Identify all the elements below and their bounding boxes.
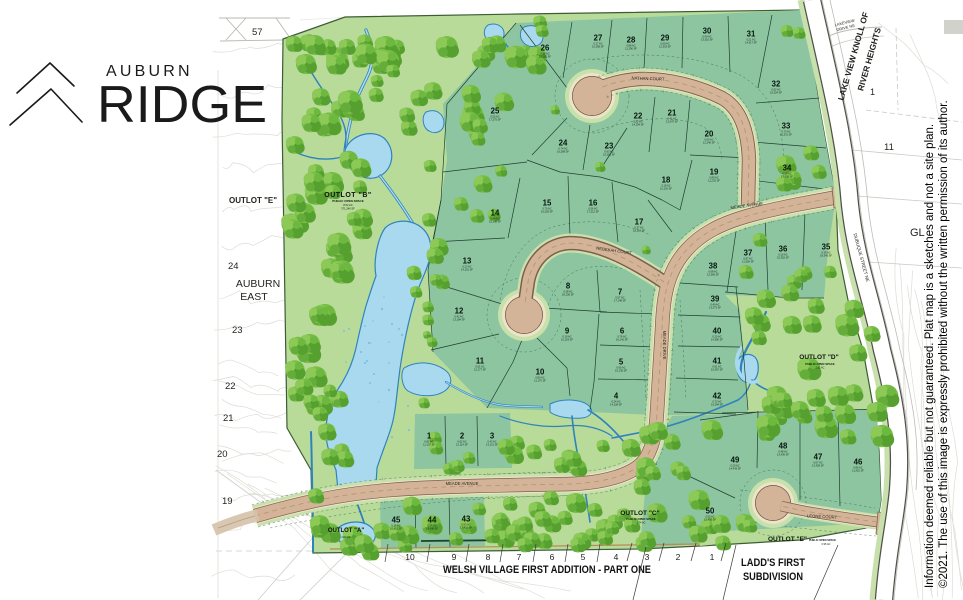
- svg-text:21: 21: [223, 413, 234, 424]
- svg-text:1.74 AC: 1.74 AC: [637, 522, 646, 525]
- svg-text:15: 15: [543, 199, 552, 208]
- svg-text:25: 25: [491, 107, 500, 116]
- svg-text:48: 48: [779, 442, 788, 451]
- svg-text:10,415 SF: 10,415 SF: [390, 527, 402, 531]
- svg-text:16,331 SF: 16,331 SF: [780, 133, 792, 137]
- svg-text:2.31 AC: 2.31 AC: [816, 367, 825, 370]
- svg-text:18,408 SF: 18,408 SF: [426, 527, 438, 531]
- svg-text:30: 30: [703, 27, 712, 36]
- svg-text:LADD'S FIRST: LADD'S FIRST: [741, 557, 805, 569]
- svg-text:15,387 SF: 15,387 SF: [711, 368, 723, 372]
- svg-text:45: 45: [392, 516, 401, 525]
- svg-text:11,107 SF: 11,107 SF: [423, 443, 435, 447]
- svg-text:OUTLOT "E": OUTLOT "E": [229, 196, 277, 205]
- svg-text:7: 7: [517, 552, 522, 562]
- svg-text:8: 8: [566, 282, 571, 291]
- svg-text:12,240 SF: 12,240 SF: [703, 141, 715, 145]
- svg-text:13,310 SF: 13,310 SF: [701, 38, 713, 42]
- svg-text:12,177 SF: 12,177 SF: [474, 368, 486, 372]
- svg-text:1: 1: [870, 87, 875, 97]
- svg-text:2.04 AC: 2.04 AC: [341, 535, 350, 539]
- svg-text:50: 50: [706, 507, 715, 516]
- svg-text:33: 33: [782, 122, 791, 131]
- svg-text:6: 6: [550, 552, 555, 562]
- svg-text:35: 35: [822, 243, 831, 252]
- svg-text:16,205 SF: 16,205 SF: [541, 210, 553, 214]
- svg-text:1: 1: [427, 432, 432, 441]
- svg-text:7: 7: [618, 288, 622, 297]
- svg-text:12,366 SF: 12,366 SF: [707, 273, 719, 277]
- svg-text:RIDGE: RIDGE: [97, 76, 267, 134]
- svg-text:23: 23: [232, 325, 243, 336]
- svg-text:OUTLOT "B": OUTLOT "B": [324, 192, 371, 199]
- svg-text:28: 28: [627, 36, 636, 45]
- svg-text:21: 21: [668, 109, 677, 118]
- svg-text:24: 24: [559, 139, 568, 148]
- svg-text:MEADE AVENUE: MEADE AVENUE: [446, 481, 479, 486]
- svg-text:17,338 SF: 17,338 SF: [781, 175, 793, 179]
- svg-text:14,254 SF: 14,254 SF: [632, 123, 644, 127]
- svg-text:3: 3: [490, 432, 495, 441]
- svg-text:14,128 SF: 14,128 SF: [610, 403, 622, 407]
- svg-text:EAST: EAST: [240, 291, 268, 303]
- svg-text:18,282 SF: 18,282 SF: [539, 55, 551, 59]
- svg-text:11: 11: [884, 142, 894, 153]
- svg-text:32: 32: [772, 80, 781, 89]
- svg-text:©2021. The use of this image: ©2021. The use of this image is expressl…: [938, 100, 950, 588]
- svg-text:42: 42: [713, 392, 722, 401]
- svg-text:17: 17: [635, 218, 644, 227]
- svg-text:20: 20: [705, 130, 714, 139]
- svg-text:11,170 SF: 11,170 SF: [534, 379, 546, 383]
- svg-text:4: 4: [614, 392, 619, 401]
- svg-text:22: 22: [634, 112, 643, 121]
- svg-text:11,233 SF: 11,233 SF: [708, 179, 720, 183]
- svg-text:22: 22: [225, 381, 236, 392]
- svg-text:2: 2: [676, 552, 681, 562]
- svg-text:14,380 SF: 14,380 SF: [711, 338, 723, 342]
- svg-text:20: 20: [217, 449, 228, 460]
- svg-text:AUBURN: AUBURN: [236, 278, 280, 290]
- svg-text:29: 29: [661, 34, 670, 43]
- svg-text:13,121 SF: 13,121 SF: [486, 443, 498, 447]
- svg-text:11,359 SF: 11,359 SF: [742, 260, 754, 264]
- svg-text:43: 43: [462, 515, 471, 524]
- svg-text:15,135 SF: 15,135 SF: [615, 369, 627, 373]
- svg-text:57: 57: [252, 27, 263, 38]
- svg-text:SUBDIVISION: SUBDIVISION: [743, 571, 803, 583]
- svg-text:371,246 SF: 371,246 SF: [341, 207, 355, 211]
- svg-text:15,198 SF: 15,198 SF: [489, 220, 501, 224]
- svg-text:15,450 SF: 15,450 SF: [704, 518, 716, 522]
- svg-text:10,163 SF: 10,163 SF: [561, 338, 573, 342]
- svg-text:40: 40: [713, 327, 722, 336]
- svg-text:19: 19: [710, 168, 719, 177]
- svg-text:11,422 SF: 11,422 SF: [852, 469, 864, 473]
- svg-text:16: 16: [589, 199, 598, 208]
- svg-text:19: 19: [222, 496, 233, 507]
- svg-text:Information deemed reliable bu: Information deemed reliable but not guar…: [924, 124, 936, 588]
- svg-text:12,303 SF: 12,303 SF: [659, 45, 671, 49]
- svg-text:36: 36: [779, 245, 788, 254]
- svg-text:38: 38: [709, 262, 718, 271]
- svg-text:10,289 SF: 10,289 SF: [592, 45, 604, 49]
- svg-text:GL: GL: [910, 227, 925, 239]
- svg-text:OUTLOT "A": OUTLOT "A": [328, 528, 365, 534]
- svg-text:31: 31: [747, 30, 756, 39]
- svg-text:PUBLIC OPEN SPACE: PUBLIC OPEN SPACE: [626, 517, 655, 521]
- svg-text:OUTLOT "D": OUTLOT "D": [799, 354, 838, 361]
- svg-text:10,226 SF: 10,226 SF: [660, 187, 672, 191]
- svg-text:14: 14: [491, 209, 500, 218]
- svg-text:10,352 SF: 10,352 SF: [777, 256, 789, 260]
- svg-text:14,443 SF: 14,443 SF: [729, 467, 741, 471]
- svg-text:18,156 SF: 18,156 SF: [562, 293, 574, 297]
- svg-text:18,219 SF: 18,219 SF: [633, 229, 645, 233]
- svg-text:46: 46: [854, 458, 863, 467]
- svg-text:44: 44: [428, 516, 437, 525]
- svg-text:10: 10: [536, 368, 545, 377]
- svg-text:PUBLIC OPEN SPACE: PUBLIC OPEN SPACE: [805, 362, 834, 366]
- svg-text:24: 24: [228, 261, 239, 272]
- svg-text:17,212 SF: 17,212 SF: [587, 210, 599, 214]
- svg-text:10: 10: [405, 552, 415, 562]
- svg-text:5: 5: [619, 358, 624, 367]
- svg-text:18,345 SF: 18,345 SF: [820, 254, 832, 258]
- svg-text:26: 26: [541, 44, 550, 53]
- svg-text:39: 39: [711, 295, 720, 304]
- svg-text:14,191 SF: 14,191 SF: [461, 268, 473, 272]
- svg-text:14,317 SF: 14,317 SF: [745, 41, 757, 45]
- svg-text:9: 9: [565, 327, 570, 336]
- svg-text:13,373 SF: 13,373 SF: [709, 306, 721, 310]
- svg-text:15,324 SF: 15,324 SF: [770, 91, 782, 95]
- svg-text:13,247 SF: 13,247 SF: [666, 120, 678, 124]
- svg-text:MEADE DRIVE: MEADE DRIVE: [662, 331, 667, 360]
- svg-text:1: 1: [710, 552, 715, 562]
- svg-text:12,114 SF: 12,114 SF: [456, 443, 468, 447]
- svg-text:WELSH VILLAGE FIRST ADDITION -: WELSH VILLAGE FIRST ADDITION - PART ONE: [443, 564, 651, 576]
- svg-text:16,394 SF: 16,394 SF: [711, 403, 723, 407]
- svg-text:6: 6: [620, 327, 625, 336]
- svg-text:16,268 SF: 16,268 SF: [557, 150, 569, 154]
- svg-text:16,142 SF: 16,142 SF: [616, 338, 628, 342]
- svg-text:13: 13: [463, 257, 472, 266]
- svg-text:0.95 AC: 0.95 AC: [822, 543, 831, 546]
- svg-text:9: 9: [452, 552, 457, 562]
- svg-text:11: 11: [476, 357, 485, 366]
- svg-text:3: 3: [645, 552, 650, 562]
- svg-text:13,184 SF: 13,184 SF: [453, 318, 465, 322]
- svg-text:49: 49: [731, 456, 740, 465]
- svg-text:5: 5: [581, 552, 586, 562]
- svg-text:8: 8: [486, 552, 491, 562]
- svg-text:4: 4: [614, 552, 619, 562]
- svg-text:41: 41: [713, 357, 722, 366]
- svg-text:8.52 AC: 8.52 AC: [343, 203, 352, 207]
- svg-text:12,429 SF: 12,429 SF: [812, 464, 824, 468]
- svg-text:OUTLOT "C": OUTLOT "C": [620, 510, 659, 517]
- svg-text:47: 47: [814, 453, 823, 462]
- svg-text:11,296 SF: 11,296 SF: [625, 47, 637, 51]
- svg-text:2: 2: [460, 432, 465, 441]
- svg-text:PUBLIC OPEN SPACE: PUBLIC OPEN SPACE: [332, 199, 363, 203]
- svg-text:23: 23: [605, 142, 614, 151]
- svg-text:17,275 SF: 17,275 SF: [489, 118, 501, 122]
- svg-text:17,401 SF: 17,401 SF: [460, 526, 472, 530]
- svg-text:13,436 SF: 13,436 SF: [777, 453, 789, 457]
- svg-text:34: 34: [783, 164, 792, 173]
- svg-text:37: 37: [744, 249, 753, 258]
- svg-text:27: 27: [594, 34, 603, 43]
- svg-text:15,261 SF: 15,261 SF: [603, 153, 615, 157]
- svg-text:12: 12: [455, 307, 464, 316]
- svg-text:18: 18: [662, 176, 671, 185]
- svg-text:17,149 SF: 17,149 SF: [614, 299, 626, 303]
